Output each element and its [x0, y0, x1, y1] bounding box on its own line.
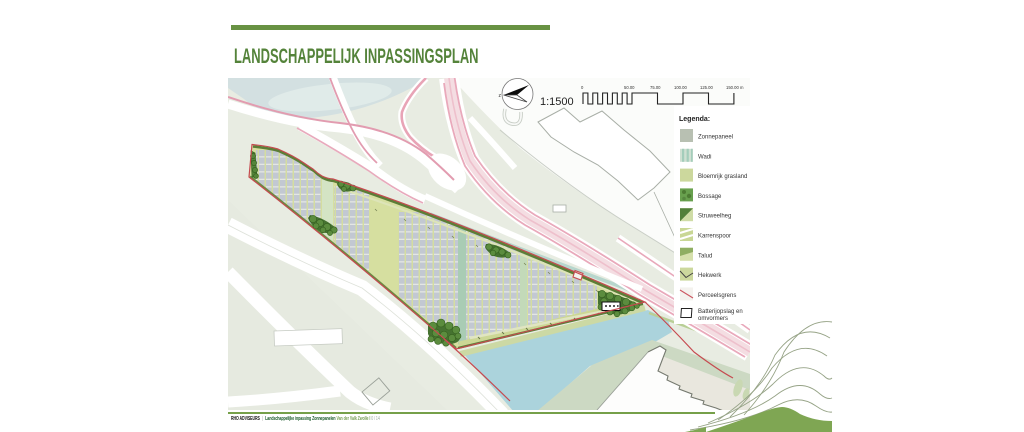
svg-text:75.00: 75.00: [650, 85, 661, 90]
svg-text:125.00: 125.00: [700, 85, 713, 90]
svg-text:Wadi: Wadi: [698, 154, 711, 160]
svg-text:Zonnepaneel: Zonnepaneel: [698, 135, 733, 141]
svg-text:50.00: 50.00: [624, 85, 635, 90]
svg-text:100.00: 100.00: [674, 85, 687, 90]
svg-text:Bossage: Bossage: [698, 194, 722, 200]
svg-text:Hekwerk: Hekwerk: [698, 273, 722, 279]
svg-text:Karrenspoor: Karrenspoor: [698, 234, 731, 240]
svg-text:Legenda:: Legenda:: [679, 116, 710, 123]
svg-text:Struweelheg: Struweelheg: [698, 214, 731, 220]
svg-text:Talud: Talud: [698, 253, 712, 259]
svg-text:150.00 m: 150.00 m: [726, 85, 744, 90]
svg-text:Bloemrijk grasland: Bloemrijk grasland: [698, 174, 747, 180]
svg-text:1:1500: 1:1500: [540, 96, 574, 108]
